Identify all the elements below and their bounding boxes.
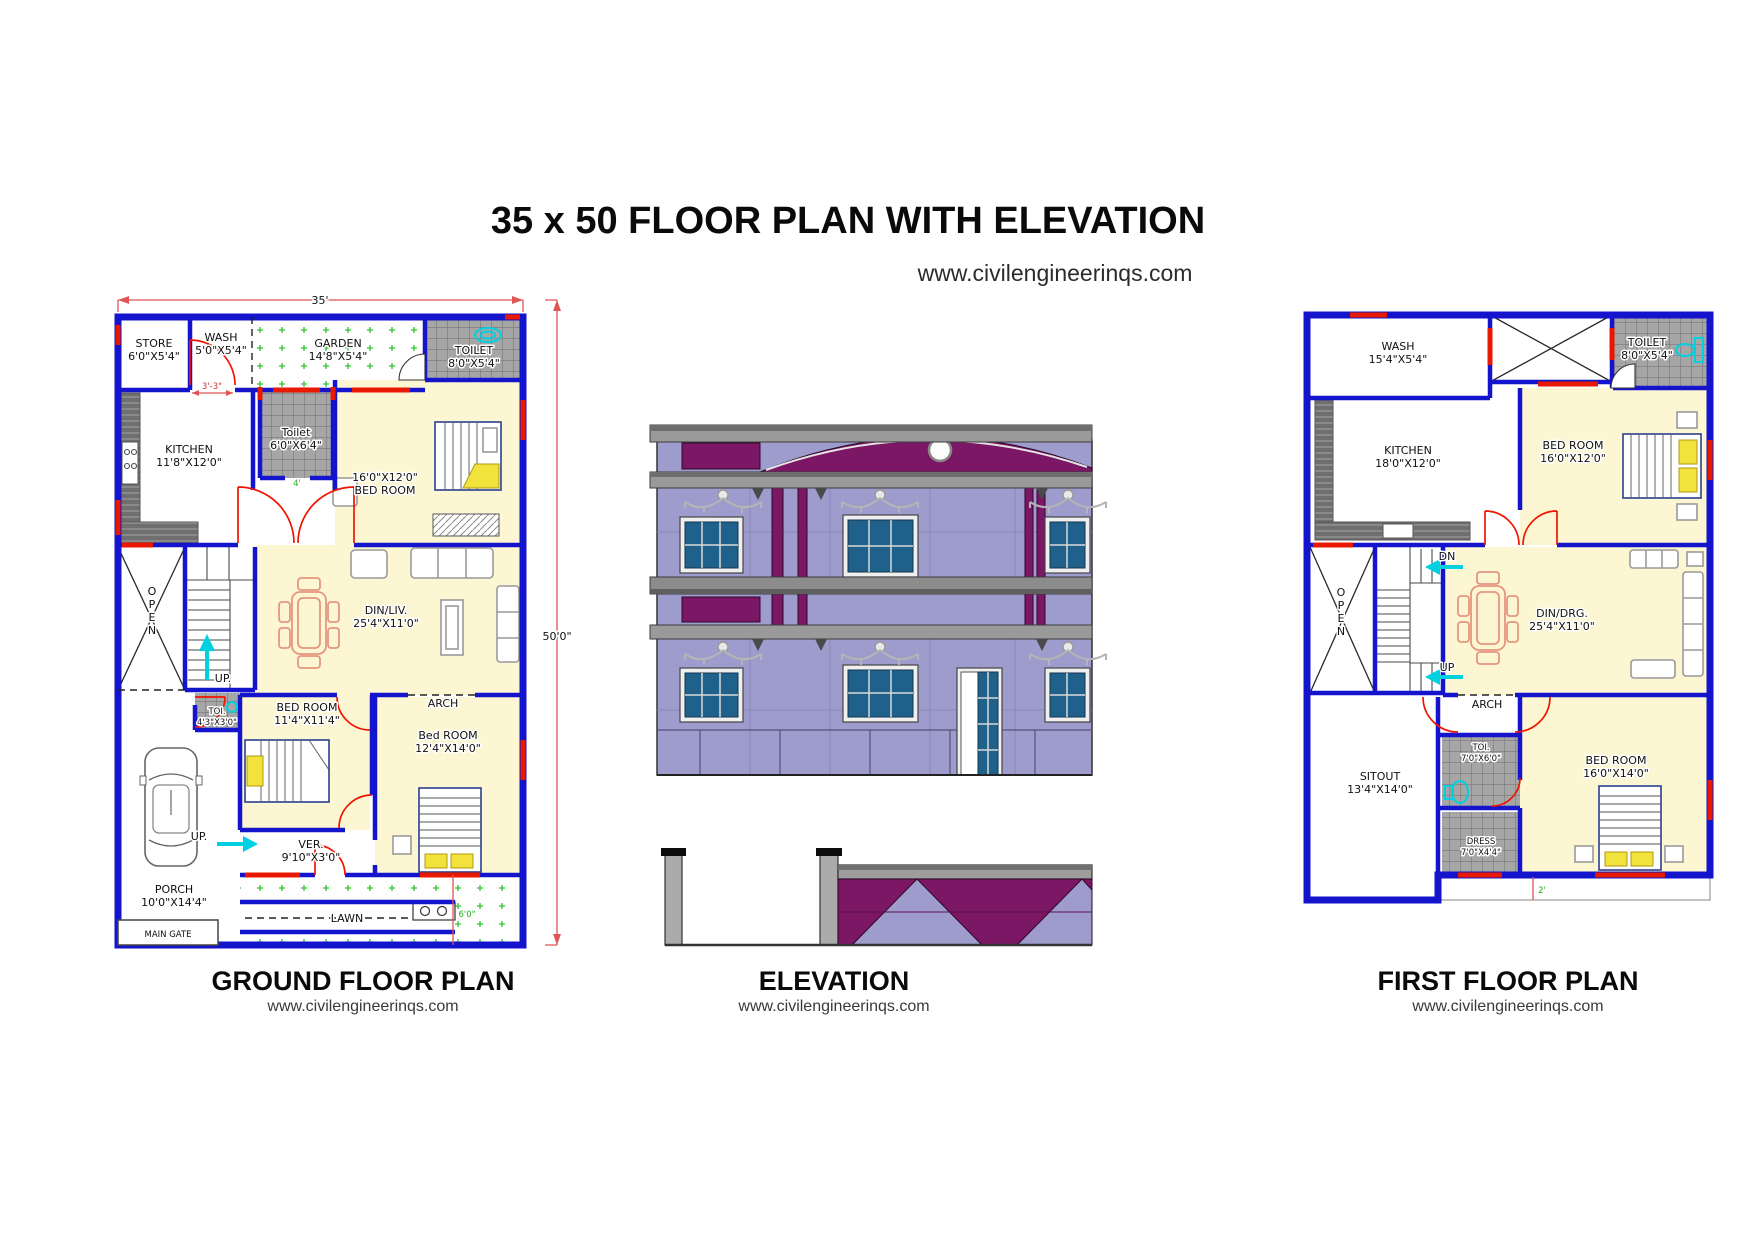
svg-text:12'4"X14'0": 12'4"X14'0" [415,742,481,755]
window-upper-center [843,515,918,577]
room-label-kitchen: KITCHEN [1384,444,1432,457]
svg-text:7'0"X6'0": 7'0"X6'0" [1461,754,1501,764]
svg-text:8'0"X5'4": 8'0"X5'4" [1621,349,1673,362]
room-label-open: OPEN [1337,586,1346,638]
room-label-ver: VER. [298,838,323,851]
first-floor-plan-drawing: WASH 15'4"X5'4" TOILET 8'0"X5'4" KITCHEN… [1295,300,1725,920]
window-upper-right [1045,517,1090,573]
window-upper-left [680,517,743,573]
main-gate-label: MAIN GATE [144,930,191,940]
room-label-toi: TOI. [1471,743,1489,753]
drawing-sheet: 35 x 50 FLOOR PLAN WITH ELEVATION www.ci… [0,0,1755,1240]
entry-door [957,668,1002,775]
elevation-website: www.civilengineerinqs.com [738,998,929,1016]
svg-text:25'4"X11'0": 25'4"X11'0" [1529,620,1595,633]
elevation-label: ELEVATION [759,966,910,997]
svg-text:16'0"X12'0": 16'0"X12'0" [1540,452,1606,465]
elevation-building [650,425,1106,775]
elevation-compound-wall [661,848,1092,945]
up-label-1: UP. [215,672,231,685]
svg-text:4'3"X3'0": 4'3"X3'0" [197,718,237,728]
room-label-wash: WASH [204,331,237,344]
up-label-2: UP. [191,830,207,843]
svg-text:11'4"X11'4": 11'4"X11'4" [274,714,340,727]
svg-text:18'0"X12'0": 18'0"X12'0" [1375,457,1441,470]
dim-height-label: 50'0" [542,630,571,643]
room-label-toilet: TOILET [1627,336,1667,349]
room-label-kitchen: KITCHEN [165,443,213,456]
page-title: 35 x 50 FLOOR PLAN WITH ELEVATION [491,200,1205,243]
svg-text:5'0"X5'4": 5'0"X5'4" [195,344,247,357]
svg-text:14'8"X5'4": 14'8"X5'4" [309,350,368,363]
room-label-dindrg: DIN/DRG. [1536,607,1588,620]
dim-width-label: 35' [311,294,328,307]
svg-text:16'0"X14'0": 16'0"X14'0" [1583,767,1649,780]
room-label-porch: PORCH [155,883,193,896]
svg-text:BED ROOM: BED ROOM [355,484,416,497]
room-label-store: STORE [136,337,173,350]
room-label-bedroom1: BED ROOM [1543,439,1604,452]
dim-toilet-door-label: 4' [293,479,301,489]
room-label-toilet1: TOILET [454,344,494,357]
lawn-label: LAWN [331,912,363,925]
svg-text:7'0"X4'4": 7'0"X4'4" [1461,848,1501,858]
room-label-toilet2: Toilet [281,426,311,439]
ground-floor-plan-drawing: 35' 50'0" 3'-3" 4' 6'0" STORE 6'0"X5'4" … [95,250,585,960]
arch-label: ARCH [1472,698,1503,711]
dim-sunshade-label: 2' [1538,886,1546,896]
room-label-dinliv: DIN/LIV. [365,604,408,617]
svg-text:9'10"X3'0": 9'10"X3'0" [282,851,341,864]
svg-text:15'4"X5'4": 15'4"X5'4" [1369,353,1428,366]
first-floor-plan-website: www.civilengineerinqs.com [1412,998,1603,1016]
room-label-wash: WASH [1381,340,1414,353]
window-lower-center [843,665,918,722]
svg-text:10'0"X14'4": 10'0"X14'4" [141,896,207,909]
page-website: www.civilengineerinqs.com [918,260,1193,287]
svg-text:13'4"X14'0": 13'4"X14'0" [1347,783,1413,796]
svg-text:11'8"X12'0": 11'8"X12'0" [156,456,222,469]
room-label-sitout: SITOUT [1360,770,1401,783]
ground-floor-plan-label: GROUND FLOOR PLAN [212,966,515,997]
window-lower-right [1045,668,1090,722]
room-label-bedroom2: BED ROOM [277,701,338,714]
first-floor-plan-label: FIRST FLOOR PLAN [1378,966,1639,997]
dn-label: DN [1439,550,1456,563]
dim-lawn-label: 6'0" [458,910,475,920]
room-label-garden: GARDEN [314,337,361,350]
room-label-bedroom2: BED ROOM [1586,754,1647,767]
svg-text:25'4"X11'0": 25'4"X11'0" [353,617,419,630]
svg-text:8'0"X5'4": 8'0"X5'4" [448,357,500,370]
room-label-dress: DRESS [1467,837,1496,847]
car-icon [140,748,202,866]
up-label: UP [1440,661,1455,674]
ground-floor-plan-website: www.civilengineerinqs.com [267,998,458,1016]
elevation-drawing [640,410,1110,955]
window-lower-left [680,668,743,722]
dim-wash-label: 3'-3" [202,382,222,392]
room-label-open: OPEN [148,585,157,637]
svg-text:6'0"X5'4": 6'0"X5'4" [128,350,180,363]
room-label-toi: TOI. [207,707,225,717]
room-label-bedroom1: 16'0"X12'0" [352,471,418,484]
arch-label: ARCH [428,697,459,710]
room-label-bedroom3: Bed ROOM [418,729,477,742]
svg-text:6'0"X6'4": 6'0"X6'4" [270,439,322,452]
